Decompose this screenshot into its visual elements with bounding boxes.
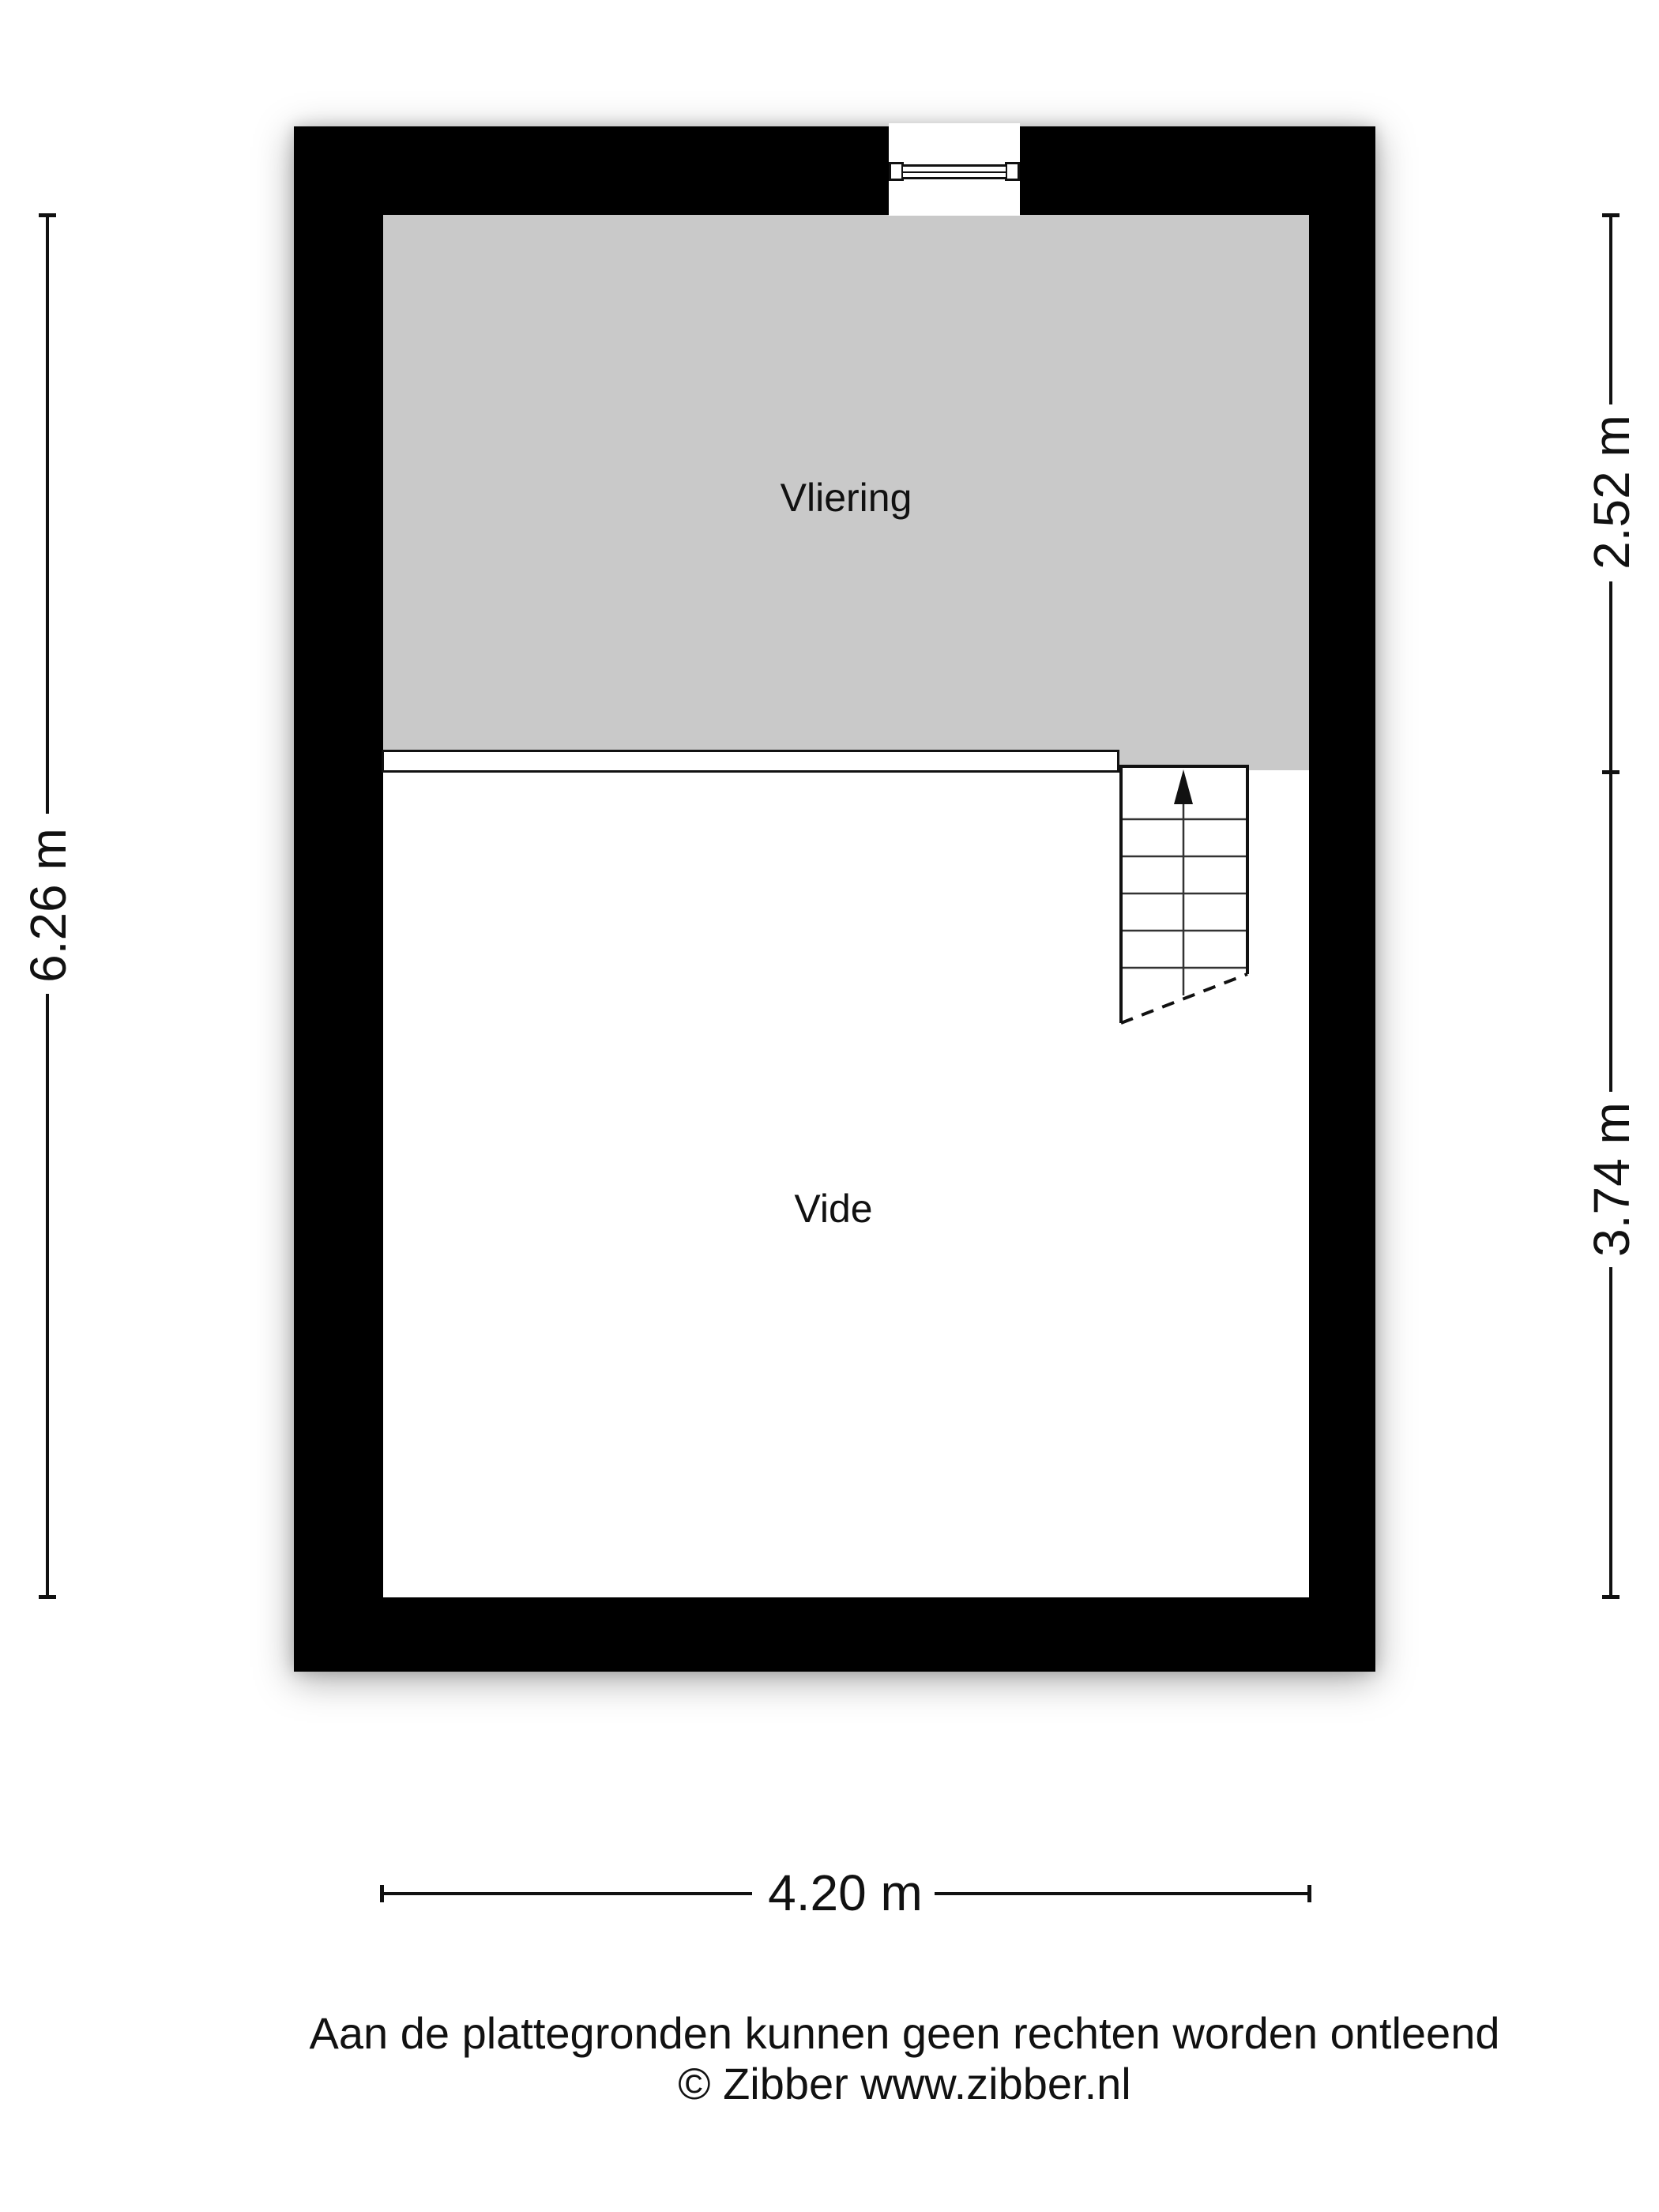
dimension-tick bbox=[1602, 1595, 1619, 1599]
window-pane-icon bbox=[903, 164, 1006, 179]
floorplan-page: Vliering Vide 6.26 m 2.52 m 3.74 m 4.20 … bbox=[0, 0, 1659, 2212]
room-label-vide: Vide bbox=[794, 1186, 872, 1232]
copyright-text: © Zibber www.zibber.nl bbox=[150, 2059, 1659, 2109]
footer: Aan de plattegronden kunnen geen rechten… bbox=[150, 2008, 1659, 2109]
window-frame-left-icon bbox=[889, 162, 904, 181]
dimension-tick bbox=[39, 213, 56, 217]
dimension-line-right bbox=[1609, 215, 1612, 404]
dimension-tick bbox=[380, 1885, 384, 1902]
vliering-floor-edge bbox=[382, 750, 1119, 773]
dimension-line-bottom bbox=[382, 1892, 752, 1895]
window-frame-right-icon bbox=[1005, 162, 1020, 181]
dimension-tick bbox=[1602, 770, 1619, 774]
dimension-line-left bbox=[46, 994, 49, 1597]
dimension-line-right bbox=[1609, 581, 1612, 1092]
dimension-line-left bbox=[46, 215, 49, 814]
dimension-line-right bbox=[1609, 1267, 1612, 1597]
dimension-label-right-bottom: 3.74 m bbox=[1582, 1102, 1641, 1257]
dimension-tick bbox=[1307, 1885, 1311, 1902]
dimension-label-bottom: 4.20 m bbox=[768, 1864, 923, 1922]
room-label-vliering: Vliering bbox=[781, 475, 912, 521]
dimension-line-bottom bbox=[935, 1892, 1309, 1895]
disclaimer-text: Aan de plattegronden kunnen geen rechten… bbox=[150, 2008, 1659, 2059]
dimension-label-left: 6.26 m bbox=[19, 828, 77, 983]
dimension-tick bbox=[1602, 213, 1619, 217]
dimension-tick bbox=[39, 1595, 56, 1599]
stairs-icon bbox=[1119, 765, 1249, 1025]
dimension-label-right-top: 2.52 m bbox=[1582, 415, 1641, 570]
